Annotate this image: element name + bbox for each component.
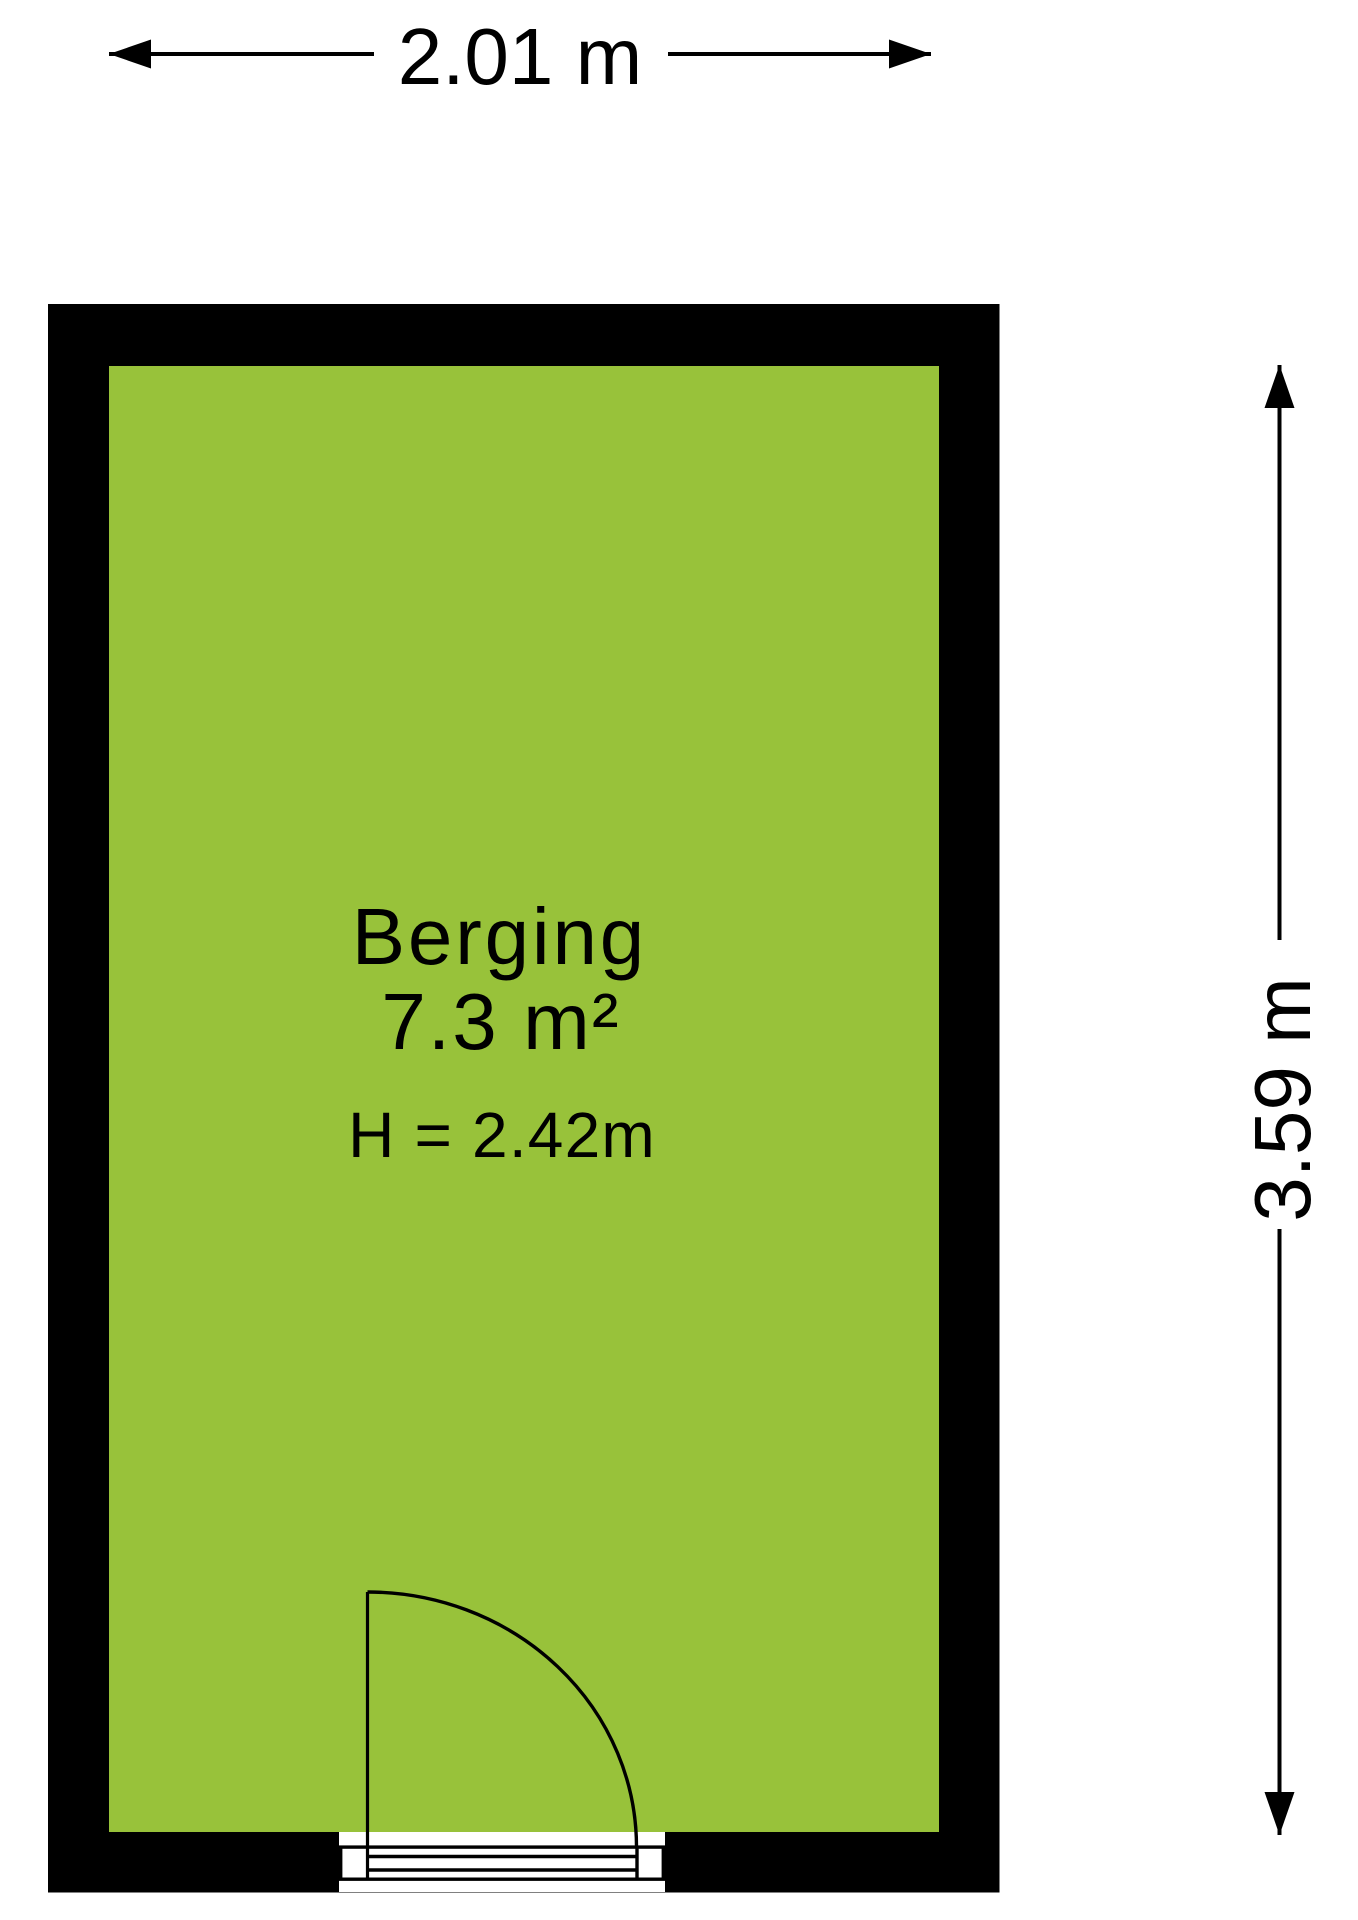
svg-text:2.01 m: 2.01 m — [398, 12, 643, 101]
svg-text:Berging: Berging — [352, 892, 647, 981]
svg-text:7.3 m²: 7.3 m² — [381, 977, 620, 1066]
svg-text:3.59 m: 3.59 m — [1238, 977, 1327, 1222]
svg-text:H = 2.42m: H = 2.42m — [348, 1099, 656, 1171]
